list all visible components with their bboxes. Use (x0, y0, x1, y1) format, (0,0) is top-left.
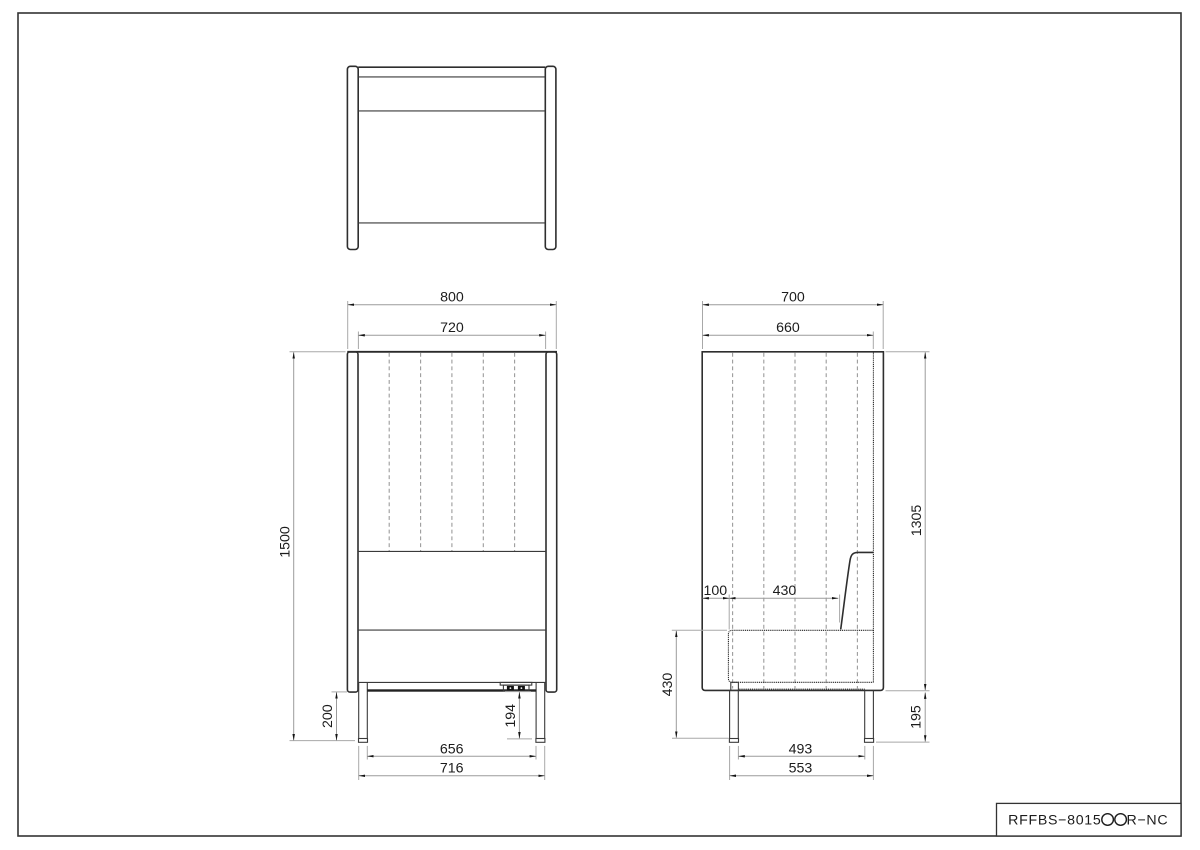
svg-text:700: 700 (781, 290, 805, 306)
svg-text:800: 800 (440, 290, 464, 306)
svg-text:720: 720 (440, 320, 464, 336)
svg-text:656: 656 (440, 741, 464, 757)
svg-text:716: 716 (440, 761, 464, 777)
svg-text:RFFBS−8015: RFFBS−8015 (1008, 813, 1101, 829)
svg-text:493: 493 (789, 741, 813, 757)
svg-text:R−NC: R−NC (1127, 813, 1169, 829)
svg-text:200: 200 (320, 704, 336, 728)
svg-text:195: 195 (909, 705, 925, 729)
svg-text:430: 430 (660, 673, 676, 697)
svg-text:660: 660 (776, 320, 800, 336)
svg-text:553: 553 (789, 761, 813, 777)
svg-text:1500: 1500 (278, 526, 294, 558)
svg-text:100: 100 (703, 583, 727, 599)
svg-text:1305: 1305 (909, 505, 925, 537)
svg-text:430: 430 (773, 583, 797, 599)
svg-text:194: 194 (503, 704, 519, 728)
